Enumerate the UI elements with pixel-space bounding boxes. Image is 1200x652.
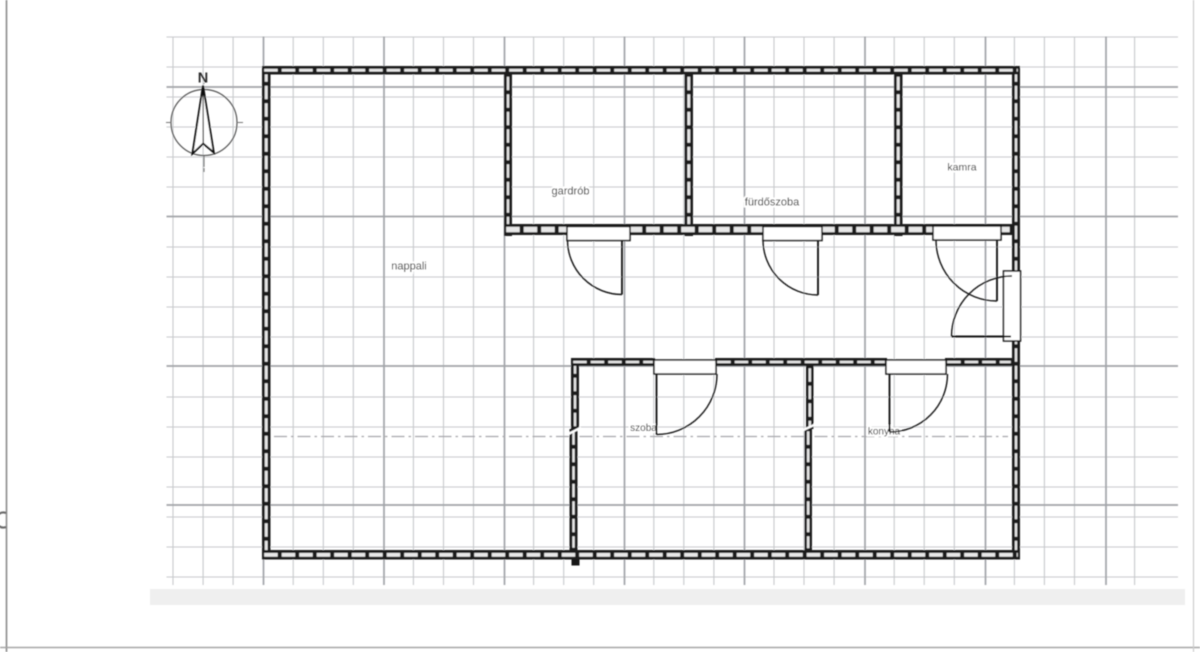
svg-text:szoba: szoba (630, 423, 657, 434)
svg-text:kamra: kamra (947, 162, 976, 174)
svg-text:fürdőszoba: fürdőszoba (745, 197, 800, 209)
svg-text:N: N (198, 71, 208, 87)
svg-text:nappali: nappali (391, 261, 426, 273)
svg-text:gardrób: gardrób (552, 186, 590, 198)
